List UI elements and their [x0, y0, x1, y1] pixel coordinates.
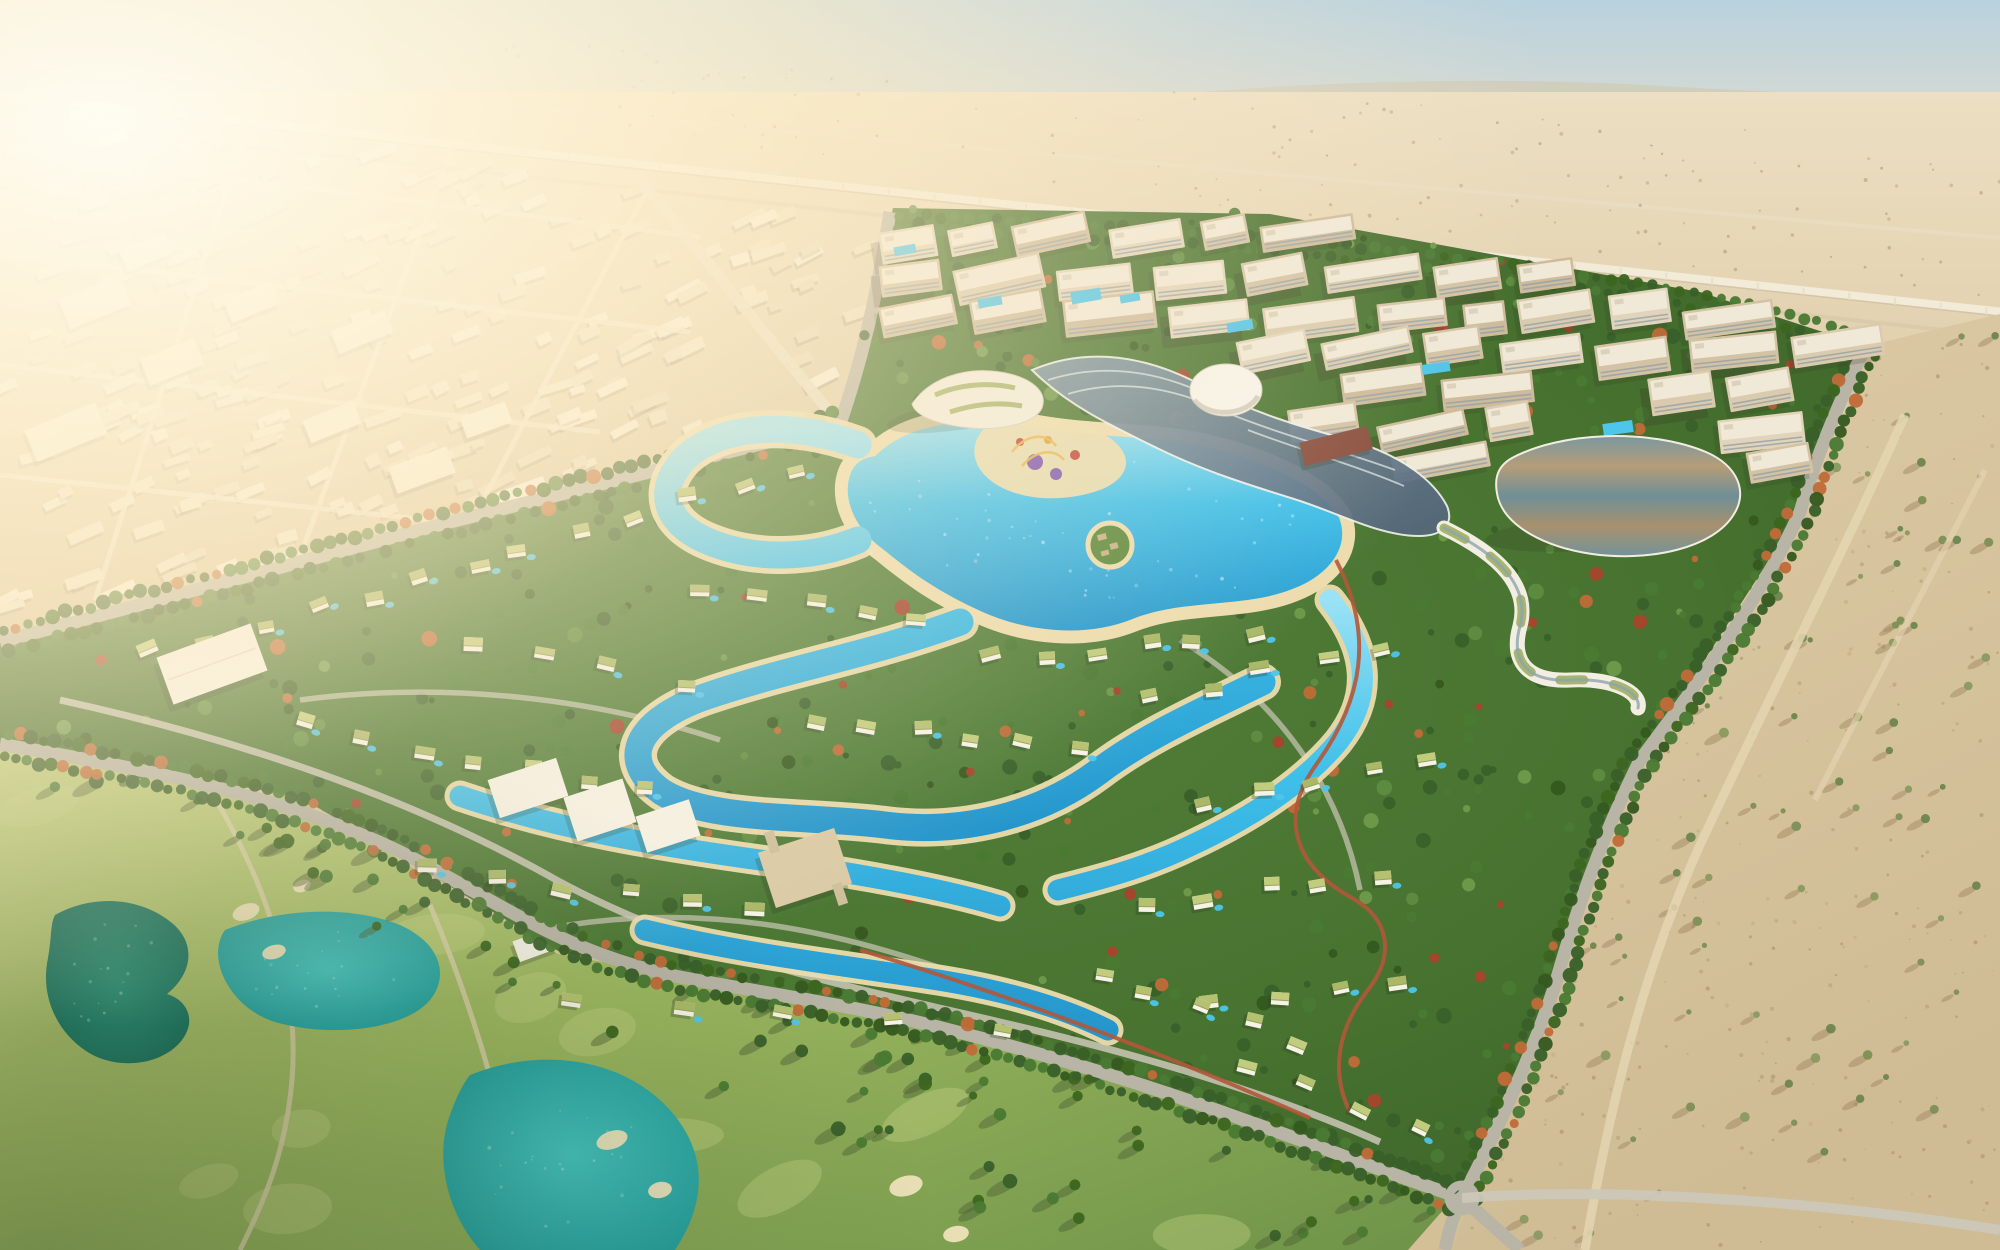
scene-root	[0, 0, 2000, 1250]
sun-glare-overlay	[0, 0, 2000, 1250]
scene-canvas	[0, 0, 2000, 1250]
aerial-render-image	[0, 0, 2000, 1250]
